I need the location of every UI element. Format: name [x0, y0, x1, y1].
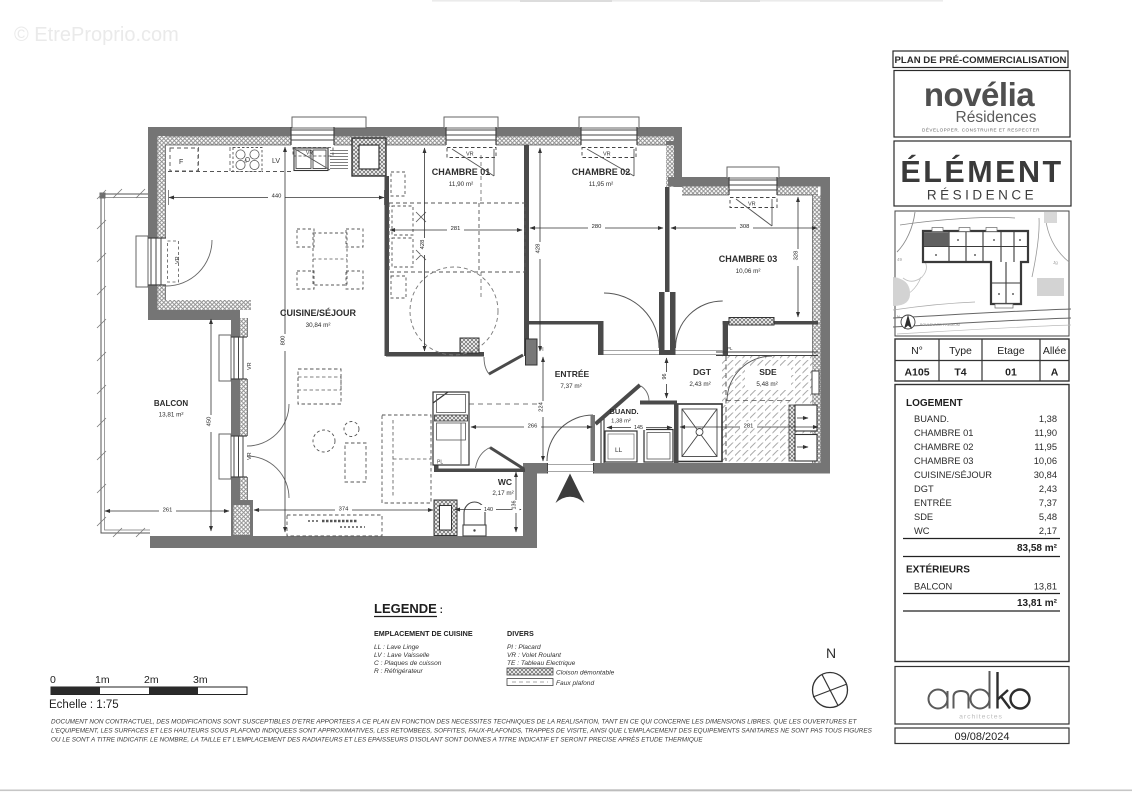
svg-text:architectes: architectes	[959, 714, 1003, 721]
svg-text:SDE: SDE	[759, 367, 777, 377]
svg-text:DGT: DGT	[693, 367, 712, 377]
svg-text:11,90: 11,90	[1034, 428, 1057, 438]
svg-text:96: 96	[662, 374, 668, 380]
svg-text:VR: VR	[466, 152, 474, 158]
svg-text:2,43: 2,43	[1039, 484, 1057, 494]
svg-text:281: 281	[744, 424, 754, 430]
svg-text:VR: VR	[603, 152, 611, 158]
svg-text:428: 428	[420, 240, 426, 250]
svg-text:Cloison démontable: Cloison démontable	[556, 670, 615, 677]
svg-text:3m: 3m	[193, 674, 208, 686]
svg-text:LEGENDE :: LEGENDE :	[374, 601, 443, 616]
svg-text:A105: A105	[904, 367, 929, 379]
svg-text:VR : Volet Roulant: VR : Volet Roulant	[507, 652, 562, 659]
svg-text:DGT: DGT	[914, 484, 934, 494]
svg-text:11,95 m²: 11,95 m²	[589, 181, 613, 188]
svg-text:Jg: Jg	[1053, 260, 1058, 265]
svg-text:30,84: 30,84	[1034, 470, 1057, 480]
svg-text:EMPLACEMENT DE CUISINE: EMPLACEMENT DE CUISINE	[374, 629, 473, 638]
svg-text:280: 280	[592, 224, 602, 230]
svg-text:2,43 m²: 2,43 m²	[689, 381, 710, 388]
svg-text:5,48: 5,48	[1039, 512, 1057, 522]
svg-text:C : Plaques de cuisson: C : Plaques de cuisson	[374, 660, 442, 667]
svg-text:450: 450	[207, 417, 213, 427]
svg-text:PLAN DE PRÉ-COMMERCIALISATION: PLAN DE PRÉ-COMMERCIALISATION	[895, 54, 1067, 66]
svg-text:TE : Tableau Electrique: TE : Tableau Electrique	[507, 660, 576, 667]
svg-text:1m: 1m	[95, 674, 110, 686]
svg-text:CHAMBRE 03: CHAMBRE 03	[719, 254, 778, 264]
svg-text:01: 01	[1005, 367, 1017, 379]
svg-text:CHAMBRE 03: CHAMBRE 03	[914, 456, 973, 466]
svg-text:308: 308	[740, 224, 750, 230]
svg-text:Allée: Allée	[1043, 345, 1067, 357]
svg-text:N: N	[826, 645, 836, 661]
svg-text:2,17 m²: 2,17 m²	[492, 490, 513, 497]
svg-text:N°: N°	[911, 345, 923, 357]
svg-text:T4: T4	[954, 367, 966, 379]
svg-text:Faux plafond: Faux plafond	[556, 680, 594, 687]
svg-text:R : Réfrigérateur: R : Réfrigérateur	[374, 668, 424, 675]
svg-text:13,81 m²: 13,81 m²	[1017, 598, 1058, 609]
svg-text:VR: VR	[247, 362, 253, 370]
svg-text:WC: WC	[914, 526, 930, 536]
svg-text:PL: PL	[437, 460, 443, 466]
svg-text:LL : Lave Linge: LL : Lave Linge	[374, 644, 419, 651]
svg-text:VR: VR	[175, 256, 181, 264]
svg-text:BALCON: BALCON	[914, 582, 952, 592]
svg-text:140: 140	[484, 507, 493, 513]
svg-text:7,37: 7,37	[1039, 498, 1057, 508]
svg-text:DIVERS: DIVERS	[507, 629, 534, 638]
svg-text:CHAMBRE 01: CHAMBRE 01	[432, 167, 491, 177]
svg-text:LV : Lave Vaisselle: LV : Lave Vaisselle	[374, 652, 430, 659]
svg-text:Type: Type	[949, 345, 972, 357]
svg-text:novélia: novélia	[924, 76, 1035, 113]
svg-text:261: 261	[163, 508, 173, 514]
svg-text:LOGEMENT: LOGEMENT	[906, 398, 963, 409]
svg-text:328: 328	[794, 251, 800, 261]
svg-text:BALCON: BALCON	[154, 399, 188, 408]
svg-text:CHAMBRE 02: CHAMBRE 02	[572, 167, 631, 177]
svg-text:SDE: SDE	[914, 512, 933, 522]
svg-text:224: 224	[539, 401, 545, 411]
svg-text:WC: WC	[498, 477, 512, 487]
svg-text:83,58 m²: 83,58 m²	[1017, 543, 1058, 554]
svg-text:440: 440	[272, 194, 282, 200]
svg-text:CUISINE/SÉJOUR: CUISINE/SÉJOUR	[914, 470, 992, 480]
svg-text:CHAMBRE 01: CHAMBRE 01	[914, 428, 973, 438]
svg-text:L'EQUIPEMENT, LES SURFACES ET: L'EQUIPEMENT, LES SURFACES ET LES HAUTEU…	[51, 728, 873, 735]
svg-text:OU LE SONT A TITRE INDICATIF.: OU LE SONT A TITRE INDICATIF. LE NOMBRE,…	[51, 735, 703, 744]
svg-text:30,84 m²: 30,84 m²	[306, 322, 331, 329]
svg-text:© EtreProprio.com: © EtreProprio.com	[14, 24, 179, 46]
svg-text:BOULEVARD PREMIUM: BOULEVARD PREMIUM	[920, 323, 960, 327]
svg-text:374: 374	[339, 507, 349, 513]
svg-text:ENTRÉE: ENTRÉE	[555, 369, 590, 379]
svg-text:BUAND.: BUAND.	[609, 407, 638, 416]
svg-text:CUISINE/SÉJOUR: CUISINE/SÉJOUR	[280, 308, 357, 318]
svg-text:EXTÉRIEURS: EXTÉRIEURS	[906, 563, 970, 576]
svg-text:BUAND.: BUAND.	[914, 414, 949, 424]
svg-text:428: 428	[536, 244, 542, 254]
svg-text:2,17: 2,17	[1039, 526, 1057, 536]
svg-text:5,48 m²: 5,48 m²	[756, 381, 777, 388]
svg-text:Etage: Etage	[997, 345, 1025, 357]
svg-text:DOCUMENT NON CONTRACTUEL, DES: DOCUMENT NON CONTRACTUEL, DES MODIFICATI…	[51, 719, 858, 726]
svg-text:ENTRÉE: ENTRÉE	[914, 498, 952, 508]
svg-text:09/08/2024: 09/08/2024	[954, 731, 1009, 743]
svg-text:PL: PL	[727, 346, 733, 351]
svg-text:Pl : Placard: Pl : Placard	[507, 644, 541, 651]
svg-text:LV: LV	[272, 158, 280, 165]
svg-text:281: 281	[451, 226, 461, 232]
svg-text:RÉSIDENCE: RÉSIDENCE	[927, 188, 1037, 203]
svg-text:11,95: 11,95	[1034, 442, 1057, 452]
svg-text:10,06 m²: 10,06 m²	[736, 268, 761, 275]
svg-text:F: F	[179, 159, 183, 166]
svg-text:266: 266	[528, 424, 538, 430]
svg-text:LL: LL	[615, 447, 623, 454]
svg-text:1,38 m²: 1,38 m²	[611, 419, 631, 425]
svg-text:ÉLÉMENT: ÉLÉMENT	[900, 154, 1063, 189]
svg-text:A: A	[1051, 367, 1059, 379]
svg-text:VR: VR	[306, 151, 313, 157]
svg-text:10,06: 10,06	[1034, 456, 1057, 466]
svg-text:145: 145	[634, 425, 643, 431]
svg-text:11,90 m²: 11,90 m²	[449, 181, 473, 188]
svg-text:49: 49	[897, 257, 902, 262]
svg-text:13,81: 13,81	[1034, 582, 1057, 592]
svg-text:7,37 m²: 7,37 m²	[560, 383, 581, 390]
svg-text:Echelle : 1:75: Echelle : 1:75	[49, 699, 119, 711]
svg-text:1,38: 1,38	[1039, 414, 1057, 424]
svg-text:136: 136	[512, 501, 518, 510]
svg-text:N: N	[897, 314, 900, 319]
svg-text:2m: 2m	[144, 674, 159, 686]
svg-text:CHAMBRE 02: CHAMBRE 02	[914, 442, 973, 452]
svg-text:800: 800	[281, 336, 287, 346]
svg-text:13,81 m²: 13,81 m²	[159, 412, 184, 419]
svg-text:0: 0	[50, 674, 56, 686]
svg-text:Résidences: Résidences	[956, 109, 1037, 126]
svg-text:DÉVELOPPER. CONSTRUIRE ET RESP: DÉVELOPPER. CONSTRUIRE ET RESPECTER	[922, 127, 1040, 133]
svg-text:VR: VR	[748, 202, 756, 208]
